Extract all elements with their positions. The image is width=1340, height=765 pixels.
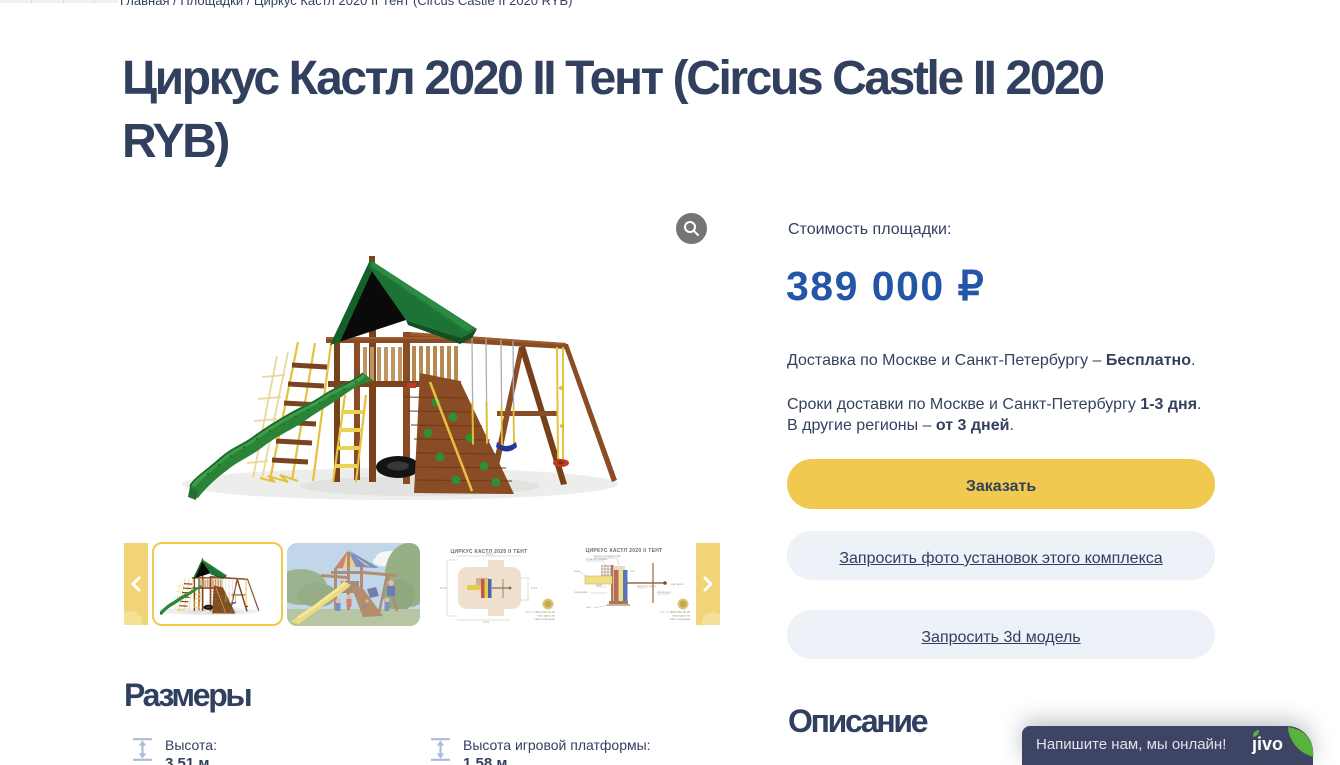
svg-text:6,3 м: 6,3 м [531,586,537,590]
svg-text:сайте компании: сайте компании [669,617,690,621]
svg-text:10,2 м: 10,2 м [486,552,494,556]
svg-text:узел крепл.: узел крепл. [671,583,685,586]
svg-text:10,76: 10,76 [440,586,447,590]
svg-text:скаладром: скаладром [574,591,587,594]
svg-text:горка: горка [574,570,581,573]
svg-text:сетка для лазания: сетка для лазания [586,558,608,561]
svg-text:ЦИРКУС КАСТЛ 2020 II ТЕНТ: ЦИРКУС КАСТЛ 2020 II ТЕНТ [586,548,663,554]
svg-text:качели диск: качели диск [657,591,672,594]
svg-text:7,6 м: 7,6 м [483,620,489,624]
svg-text:качели на цепях: качели на цепях [637,585,657,588]
svg-text:сайте компании: сайте компании [534,617,555,621]
svg-text:канат: канат [596,584,603,587]
svg-text:тент: тент [630,570,636,573]
svg-text:тент: тент [586,606,592,609]
